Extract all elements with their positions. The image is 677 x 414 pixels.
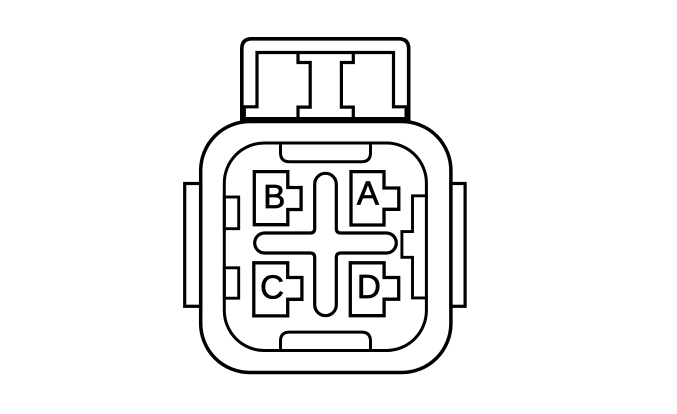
svg-text:A: A	[357, 175, 379, 212]
svg-text:C: C	[260, 268, 284, 305]
svg-text:D: D	[357, 268, 381, 305]
svg-text:B: B	[263, 178, 285, 215]
